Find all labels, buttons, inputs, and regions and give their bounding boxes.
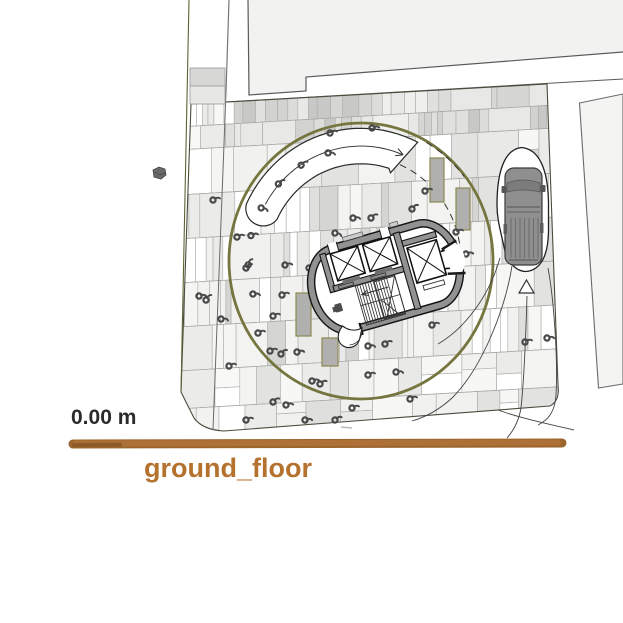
- svg-text:0.00 m: 0.00 m: [71, 406, 136, 429]
- svg-text:ground_floor: ground_floor: [144, 453, 312, 483]
